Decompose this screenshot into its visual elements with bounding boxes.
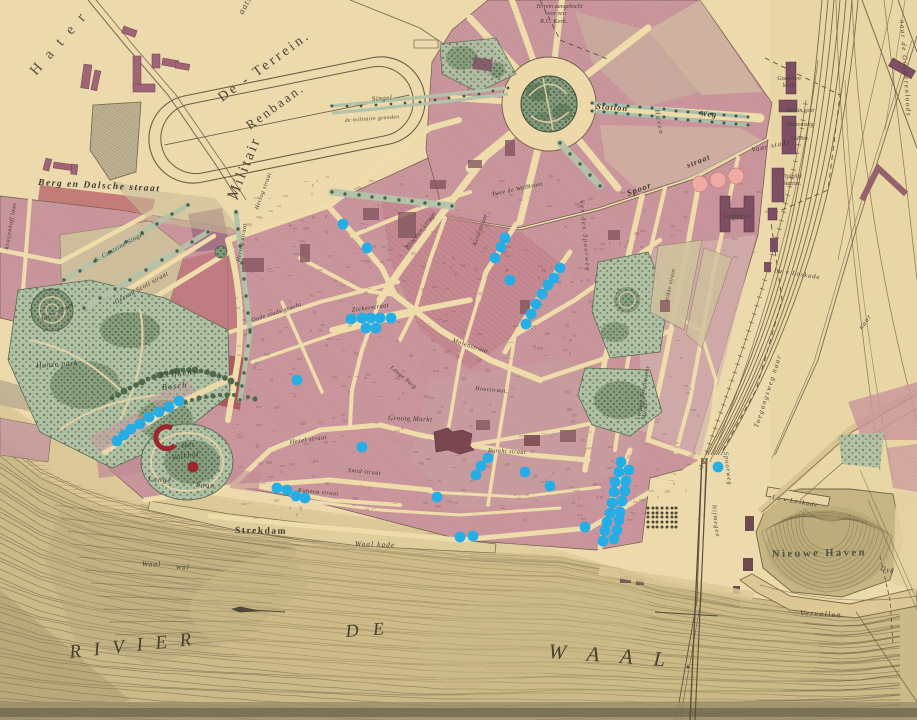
svg-text:D E: D E — [344, 618, 390, 641]
svg-text:Gasfabriek: Gasfabriek — [724, 213, 751, 220]
svg-text:Tijdelijk: Tijdelijk — [782, 174, 802, 180]
svg-text:Singel: Singel — [372, 94, 393, 103]
svg-text:Strekdam: Strekdam — [235, 526, 287, 537]
svg-text:Terrein voor: Terrein voor — [785, 108, 815, 114]
svg-text:Weg: Weg — [700, 109, 718, 119]
svg-text:loods: loods — [782, 83, 796, 89]
svg-text:baan: baan — [196, 480, 216, 490]
svg-text:Toekomstig: Toekomstig — [786, 122, 813, 128]
svg-text:Station.: Station. — [783, 181, 802, 187]
svg-text:Waal kade: Waal kade — [355, 539, 395, 549]
svg-text:Het: Het — [180, 439, 195, 450]
svg-text:wal: wal — [176, 562, 190, 571]
svg-text:Goederen: Goederen — [777, 76, 800, 82]
svg-text:Lange: Lange — [147, 474, 172, 485]
svg-text:Terrein aangekocht: Terrein aangekocht — [536, 4, 583, 10]
svg-text:Station.: Station. — [791, 136, 810, 142]
svg-text:Nieuwe Haven: Nieuwe Haven — [772, 547, 867, 560]
svg-text:Groote Markt: Groote Markt — [388, 414, 433, 424]
svg-text:voor een: voor een — [545, 11, 566, 17]
svg-text:R.C. Kerk.: R.C. Kerk. — [539, 18, 568, 25]
svg-text:Waal: Waal — [142, 559, 161, 569]
